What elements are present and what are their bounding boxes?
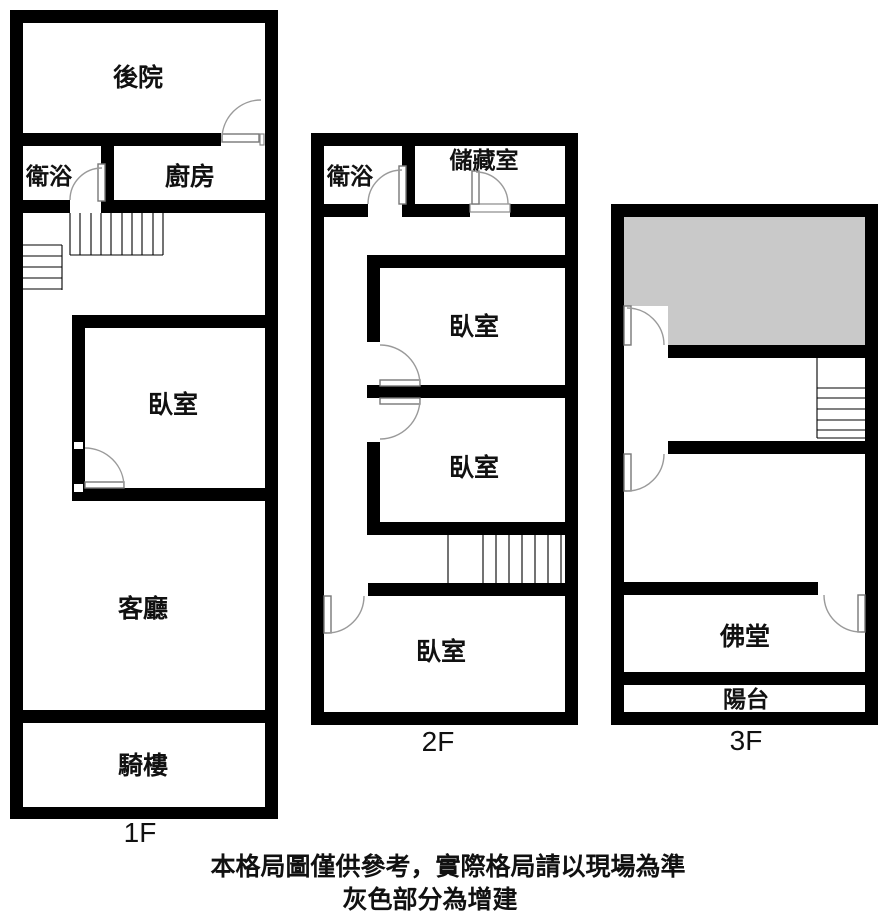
door-leaf (380, 398, 420, 404)
f1-bathroom-door-opening (70, 200, 101, 213)
f2-room-label-bedroom-top: 臥室 (449, 312, 499, 341)
f1-room-label-bedroom: 臥室 (148, 390, 198, 419)
door-leaf (624, 454, 631, 491)
floorplan-page: 後院 衛浴 廚房 臥室 客廳 騎樓 1F (0, 0, 889, 918)
floor-2-plan: 衛浴 儲藏室 臥室 臥室 臥室 2F (311, 133, 578, 757)
door-jamb (74, 484, 83, 492)
door-leaf (858, 595, 865, 632)
door-jamb (818, 584, 827, 595)
f3-middle-door-opening (624, 441, 668, 454)
door-leaf (624, 306, 631, 345)
door-leaf (472, 171, 479, 204)
door-jamb (368, 436, 378, 442)
f1-wall-band-bottom (23, 200, 265, 213)
door-jamb (368, 342, 378, 348)
f1-room-label-kitchen: 廚房 (165, 162, 215, 191)
door-leaf (85, 482, 124, 488)
floor-label-1f: 1F (124, 817, 157, 848)
f1-wall-bedroom-top (72, 315, 265, 328)
f2-wall-band-bottom (324, 204, 565, 217)
f2-bedroom2-door-opening (367, 398, 380, 442)
f1-wall-bedroom-bottom (72, 488, 265, 501)
f2-wall-bedroom-top (367, 255, 565, 268)
door-leaf (222, 134, 259, 142)
f2-wall-bedroom2-bottom (367, 522, 565, 535)
f1-room-label-bathroom: 衛浴 (25, 163, 73, 189)
floor-label-3f: 3F (730, 725, 763, 756)
door-jamb (260, 134, 264, 145)
f1-wall-arcade-divider (23, 710, 265, 723)
floor-3-plan: 佛堂 陽台 3F (611, 204, 878, 756)
door-threshold (470, 204, 510, 212)
f1-room-label-arcade: 騎樓 (118, 752, 168, 780)
floor-1-plan: 後院 衛浴 廚房 臥室 客廳 騎樓 1F (10, 10, 278, 848)
disclaimer-line-2: 灰色部分為增建 (342, 885, 517, 914)
f2-room-label-storage: 儲藏室 (450, 147, 519, 173)
f2-interior (324, 146, 565, 712)
f2-wall-bedroom-mid (367, 385, 565, 398)
f1-room-label-backyard: 後院 (113, 63, 163, 92)
f1-wall-bedroom-left (72, 315, 85, 501)
door-leaf (324, 596, 331, 633)
f2-room-label-bedroom-bottom: 臥室 (416, 637, 466, 666)
door-leaf (380, 380, 420, 386)
f2-room-label-bedroom-middle: 臥室 (449, 453, 499, 482)
f2-bedroom1-door-opening (367, 342, 380, 385)
f2-room-label-bathroom: 衛浴 (326, 163, 374, 189)
disclaimer-line-1: 本格局圖僅供參考，實際格局請以現場為準 (210, 852, 685, 881)
disclaimer: 本格局圖僅供參考，實際格局請以現場為準 灰色部分為增建 (210, 852, 685, 914)
f3-room-label-buddhist-hall: 佛堂 (719, 622, 770, 651)
floor-label-2f: 2F (422, 726, 455, 757)
f3-room-label-balcony: 陽台 (723, 686, 769, 712)
f2-bedroom3-door-opening (324, 583, 368, 596)
door-leaf (98, 164, 105, 201)
f2-bathroom-door-opening (368, 204, 402, 217)
door-jamb (74, 442, 83, 449)
floorplan-drawing: 後院 衛浴 廚房 臥室 客廳 騎樓 1F (0, 0, 889, 918)
f3-wall-balcony-top (624, 672, 865, 685)
f1-room-label-living-room: 客廳 (118, 594, 168, 623)
door-leaf (399, 166, 406, 204)
